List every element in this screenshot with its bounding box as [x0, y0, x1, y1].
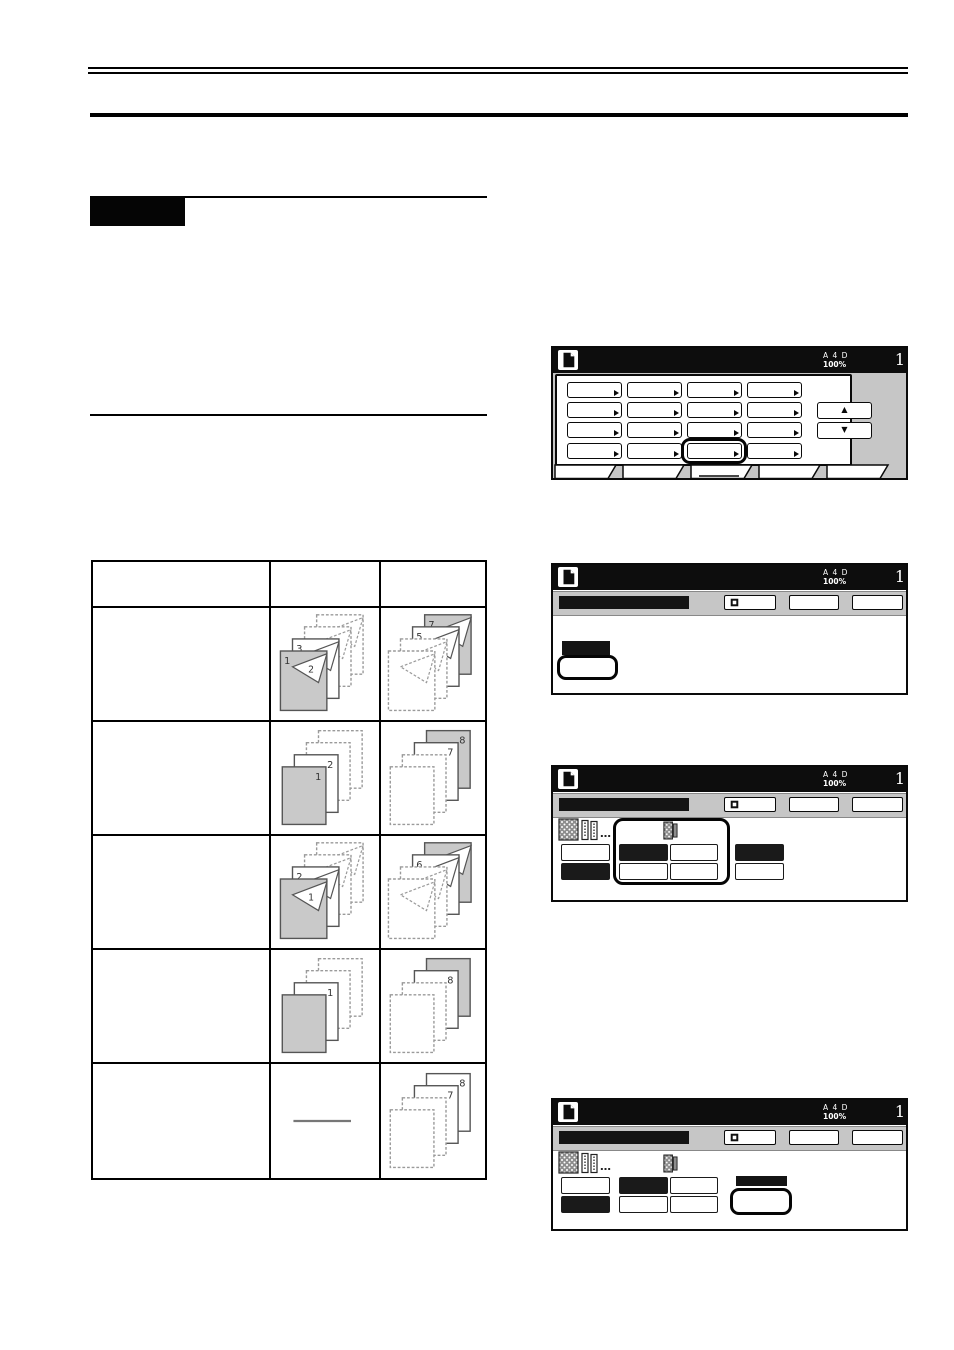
button-corner-arrow-icon [674, 390, 679, 396]
selected-function-highlight [681, 438, 747, 464]
function-button[interactable] [627, 402, 682, 418]
function-button[interactable] [567, 443, 622, 459]
table-cell-copies: 876 [381, 836, 485, 950]
svg-text:1: 1 [315, 772, 321, 783]
header-option-button[interactable] [852, 1130, 903, 1145]
copy-count: 1 [883, 1102, 905, 1121]
copy-count: 1 [883, 769, 905, 788]
svg-text:1: 1 [284, 656, 290, 667]
function-button[interactable] [687, 402, 742, 418]
status-indicators: A 4 D100% [823, 568, 848, 586]
ellipsis-label: … [600, 827, 611, 840]
svg-text:2: 2 [308, 664, 314, 675]
button-corner-arrow-icon [794, 451, 799, 457]
register-icon [730, 1133, 739, 1142]
sheet-stack-illustration: 87 [381, 724, 485, 832]
button-corner-arrow-icon [674, 410, 679, 416]
sort-left-option-button[interactable] [561, 863, 610, 880]
table-cell-original: 321 [271, 836, 381, 950]
function-button[interactable] [687, 382, 742, 398]
svg-text:7: 7 [447, 1091, 453, 1102]
sheet-stack-illustration: 321 [273, 838, 377, 946]
table-cell-original: 1 [271, 950, 381, 1064]
sort-right-selected-button[interactable] [730, 1188, 792, 1215]
button-corner-arrow-icon [614, 451, 619, 457]
svg-text:1: 1 [308, 892, 314, 903]
table-cell-copies: 8 [381, 950, 485, 1064]
register-icon [730, 598, 739, 607]
document-icon [559, 1103, 577, 1121]
paper-size-status: A 4 D [823, 770, 848, 779]
button-corner-arrow-icon [734, 430, 739, 436]
subsection-rule [90, 414, 487, 416]
paper-size-status: A 4 D [823, 351, 848, 360]
lcd-panel-mode-setting: A 4 D100%1 [551, 563, 908, 695]
lcd-panel-sort-mode-a: A 4 D100%1… [551, 765, 908, 902]
document-icon-box [558, 1102, 578, 1122]
setting-label-bar [562, 641, 610, 655]
header-option-button[interactable] [789, 1130, 839, 1145]
function-button[interactable] [747, 402, 802, 418]
sheet-stack-illustration: 87 [381, 1067, 485, 1175]
table-header-cell [93, 562, 271, 608]
ellipsis-label: … [600, 1160, 611, 1173]
register-icon [730, 800, 739, 809]
register-button[interactable] [724, 595, 776, 610]
button-corner-arrow-icon [674, 430, 679, 436]
button-corner-arrow-icon [734, 410, 739, 416]
zoom-ratio: 100% [823, 779, 848, 788]
sort-grid-option-button[interactable] [619, 1196, 668, 1213]
header-thick-rule [90, 113, 908, 117]
table-header-cell [381, 562, 485, 608]
button-corner-arrow-icon [794, 410, 799, 416]
sort-left-option-button[interactable] [561, 1177, 610, 1194]
sort-grid-option-button[interactable] [670, 844, 718, 861]
copy-count: 1 [883, 567, 905, 586]
lcd-titlebar: A 4 D100%1 [553, 767, 906, 792]
document-icon-box [558, 350, 578, 370]
sheet-stack-illustration: 21 [273, 724, 377, 832]
svg-text:8: 8 [447, 976, 453, 987]
table-row-description [93, 836, 271, 950]
document-icon [559, 351, 577, 369]
function-button[interactable] [687, 422, 742, 438]
function-button[interactable] [747, 422, 802, 438]
zoom-ratio: 100% [823, 577, 848, 586]
function-button[interactable] [567, 402, 622, 418]
sort-right-option-button[interactable] [735, 844, 784, 861]
function-button[interactable] [747, 443, 802, 459]
sheet-stack-illustration: 4321 [273, 610, 377, 718]
function-button[interactable] [567, 422, 622, 438]
svg-text:7: 7 [447, 748, 453, 759]
lcd-panel-sort-mode-b: A 4 D100%1… [551, 1098, 908, 1231]
function-button[interactable] [627, 422, 682, 438]
lcd-titlebar: A 4 D100%1 [553, 1100, 906, 1125]
button-corner-arrow-icon [794, 390, 799, 396]
document-icon-box [558, 769, 578, 789]
button-corner-arrow-icon [674, 451, 679, 457]
register-button[interactable] [724, 1130, 776, 1145]
top-rule-upper [88, 67, 908, 69]
paper-size-status: A 4 D [823, 568, 848, 577]
svg-text:1: 1 [327, 988, 333, 999]
sort-grid-option-button[interactable] [670, 1196, 718, 1213]
sort-right-option-button[interactable] [735, 863, 784, 880]
section-banner-rule [185, 196, 487, 198]
header-option-button[interactable] [852, 797, 903, 812]
originals-copies-table: 4321876521873218761887 [91, 560, 487, 1180]
copy-count: 1 [883, 350, 905, 369]
sheet-stack-illustration: 1 [273, 952, 377, 1060]
status-indicators: A 4 D100% [823, 351, 848, 369]
svg-text:2: 2 [327, 760, 333, 771]
sort-left-option-button[interactable] [561, 844, 610, 861]
document-set-icon [663, 1154, 678, 1173]
lcd-titlebar: A 4 D100%1 [553, 348, 906, 373]
table-row-description [93, 1064, 271, 1178]
sheet-stack-illustration: 876 [381, 838, 485, 946]
sort-grid-option-button[interactable] [670, 1177, 718, 1194]
document-icon [559, 568, 577, 586]
table-cell-original: 4321 [271, 608, 381, 722]
function-button[interactable] [627, 443, 682, 459]
lcd-titlebar: A 4 D100%1 [553, 565, 906, 590]
table-cell-original: 21 [271, 722, 381, 836]
sort-grid-option-button[interactable] [619, 1177, 668, 1194]
button-corner-arrow-icon [794, 430, 799, 436]
lcd-header-strip [553, 793, 906, 818]
function-button[interactable] [567, 382, 622, 398]
sort-left-option-button[interactable] [561, 1196, 610, 1213]
sheet-stack-illustration: 8 [381, 952, 485, 1060]
scroll-down-button[interactable]: ▼ [817, 422, 872, 439]
table-cell-copies: 87 [381, 722, 485, 836]
header-option-button[interactable] [852, 595, 903, 610]
button-corner-arrow-icon [614, 390, 619, 396]
function-button[interactable] [747, 382, 802, 398]
zoom-ratio: 100% [823, 360, 848, 369]
table-row-description [93, 950, 271, 1064]
button-corner-arrow-icon [614, 410, 619, 416]
function-button[interactable] [627, 382, 682, 398]
no-original-dash [273, 1067, 377, 1175]
table-header-cell [271, 562, 381, 608]
header-option-button[interactable] [789, 797, 839, 812]
sort-right-label-bar [736, 1176, 787, 1186]
screen-tabs[interactable] [553, 464, 908, 480]
document-set-icon-box [663, 1154, 678, 1177]
table-cell-copies: 8765 [381, 608, 485, 722]
status-indicators: A 4 D100% [823, 1103, 848, 1121]
svg-text:8: 8 [459, 736, 465, 747]
header-option-button[interactable] [789, 595, 839, 610]
sort-grid-option-button[interactable] [619, 844, 668, 861]
paper-size-status: A 4 D [823, 1103, 848, 1112]
scroll-up-button[interactable]: ▲ [817, 402, 872, 419]
table-row-description [93, 608, 271, 722]
screen-title-bar [559, 798, 689, 811]
button-corner-arrow-icon [614, 430, 619, 436]
sort-grid-option-button[interactable] [619, 863, 668, 880]
button-corner-arrow-icon [734, 390, 739, 396]
lcd-header-strip [553, 591, 906, 616]
sorted-sets-icon: … [558, 1151, 610, 1179]
screen-title-bar [559, 1131, 689, 1144]
document-icon-box [558, 567, 578, 587]
table-cell-copies: 87 [381, 1064, 485, 1178]
screen-title-bar [559, 596, 689, 609]
lcd-panel-function-menu: A 4 D100%1▲▼ [551, 346, 908, 480]
document-icon [559, 770, 577, 788]
zoom-ratio: 100% [823, 1112, 848, 1121]
svg-text:8: 8 [459, 1079, 465, 1090]
setting-selected-button[interactable] [557, 655, 618, 680]
lcd-header-strip [553, 1126, 906, 1151]
sorted-sets-icon: … [558, 818, 610, 846]
register-button[interactable] [724, 797, 776, 812]
sort-grid-option-button[interactable] [670, 863, 718, 880]
section-banner [90, 196, 185, 226]
sheet-stack-illustration: 8765 [381, 610, 485, 718]
status-indicators: A 4 D100% [823, 770, 848, 788]
table-cell-original [271, 1064, 381, 1178]
manual-page: 4321876521873218761887 A 4 D100%1▲▼ A 4 … [0, 0, 954, 1350]
table-row-description [93, 722, 271, 836]
top-rule-lower [88, 72, 908, 74]
